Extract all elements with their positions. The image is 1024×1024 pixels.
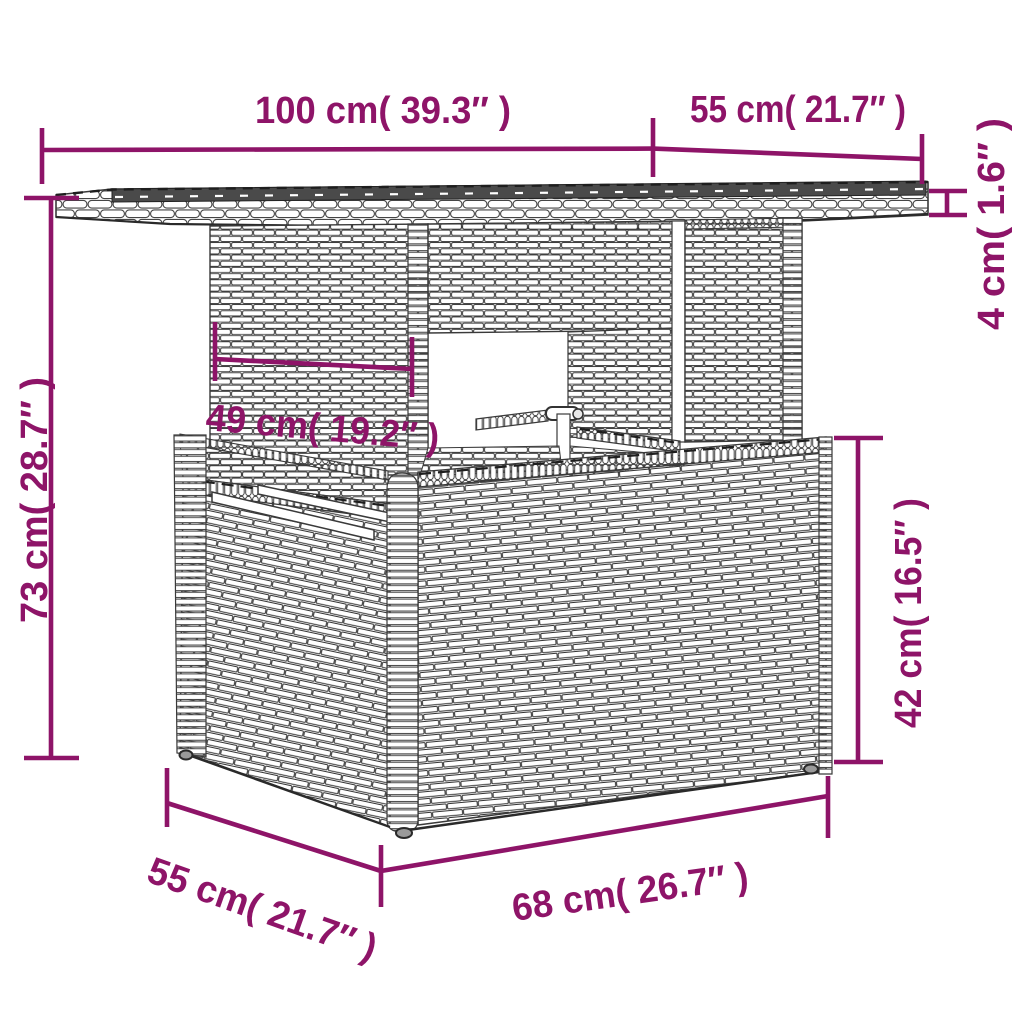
svg-text:55 cm( 21.7″ ): 55 cm( 21.7″ ) <box>690 89 906 131</box>
svg-text:73 cm( 28.7″ ): 73 cm( 28.7″ ) <box>14 377 56 623</box>
svg-text:4 cm( 1.6″ ): 4 cm( 1.6″ ) <box>971 118 1013 330</box>
svg-text:42 cm( 16.5″ ): 42 cm( 16.5″ ) <box>888 498 930 728</box>
svg-text:100 cm( 39.3″ ): 100 cm( 39.3″ ) <box>255 90 511 132</box>
